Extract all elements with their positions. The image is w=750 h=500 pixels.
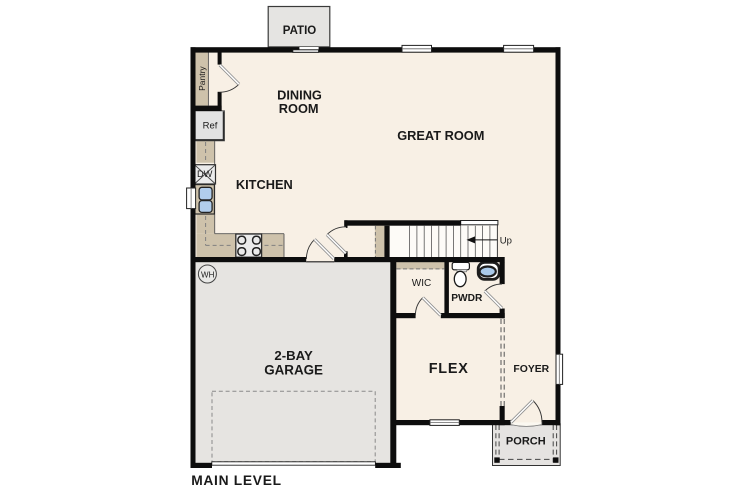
svg-text:FLEX: FLEX: [429, 361, 469, 377]
svg-text:FOYER: FOYER: [513, 364, 549, 375]
svg-text:KITCHEN: KITCHEN: [236, 177, 293, 192]
svg-text:GARAGE: GARAGE: [264, 362, 323, 377]
svg-text:DW: DW: [197, 169, 213, 179]
svg-text:GREAT ROOM: GREAT ROOM: [397, 128, 484, 143]
svg-text:Ref: Ref: [203, 121, 218, 132]
svg-text:Up: Up: [500, 235, 512, 246]
svg-text:ROOM: ROOM: [279, 101, 319, 116]
svg-text:2-BAY: 2-BAY: [274, 348, 313, 363]
svg-text:PORCH: PORCH: [506, 436, 546, 448]
svg-text:WH: WH: [201, 271, 215, 280]
svg-text:MAIN LEVEL: MAIN LEVEL: [191, 473, 282, 488]
svg-text:WIC: WIC: [412, 278, 431, 289]
svg-text:PWDR: PWDR: [451, 293, 483, 304]
svg-text:PATIO: PATIO: [283, 25, 316, 37]
svg-text:Pantry: Pantry: [197, 66, 207, 91]
